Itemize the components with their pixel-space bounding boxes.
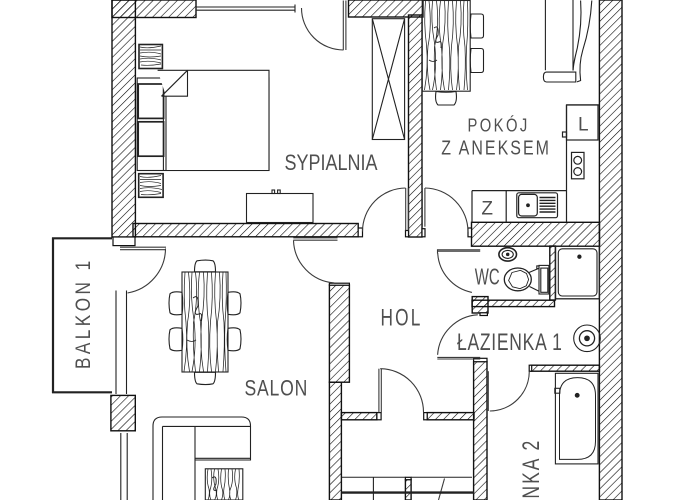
svg-text:SYPIALNIA: SYPIALNIA [285,151,378,175]
svg-text:ŁAZIENKA 2: ŁAZIENKA 2 [518,439,544,500]
svg-text:L: L [578,115,589,136]
svg-text:Z: Z [481,199,493,220]
svg-text:WC: WC [475,264,500,290]
svg-text:Z ANEKSEM: Z ANEKSEM [441,135,551,158]
svg-text:ŁAZIENKA 1: ŁAZIENKA 1 [457,329,563,355]
svg-text:HOL: HOL [381,305,423,331]
svg-text:POKÓJ: POKÓJ [468,115,530,136]
svg-text:SALON: SALON [245,377,309,401]
svg-text:BALKON 1: BALKON 1 [71,257,95,369]
